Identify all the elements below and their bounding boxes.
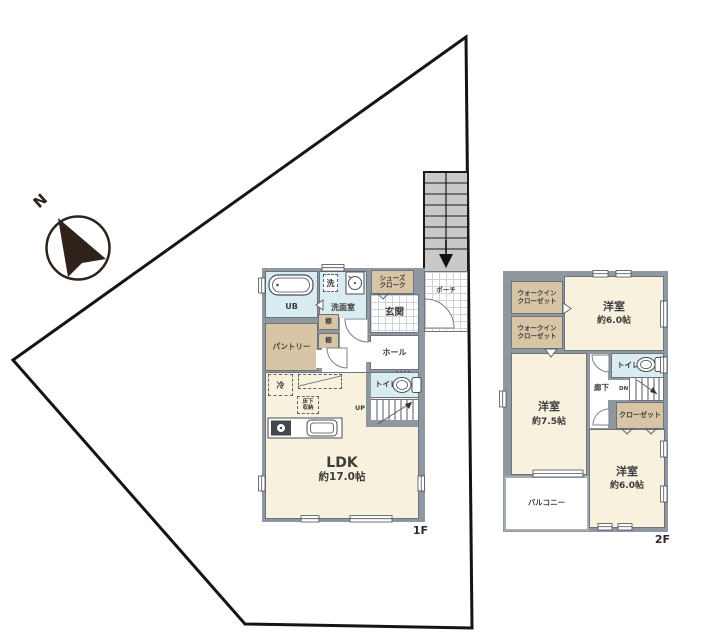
room-wic-2: ウォークイン クローゼット — [512, 317, 562, 348]
wic2-line2: クローゼット — [518, 333, 557, 340]
porch: ポーチ — [425, 272, 467, 331]
counter-space — [298, 374, 342, 389]
hallway-label: 廊下 — [594, 384, 609, 393]
room-closet: クローゼット — [617, 403, 663, 428]
balcony: バルコニー — [506, 478, 587, 529]
north-label: N — [30, 190, 51, 212]
stairs-down-arrow-icon — [439, 254, 453, 268]
ldk-label: LDK — [326, 455, 357, 471]
shoe-cloak-line2: クローク — [380, 282, 406, 289]
bedroom-top-label: 洋室 — [603, 301, 625, 314]
exterior-stairs — [424, 172, 468, 272]
shelf-2: 棚 — [319, 334, 338, 348]
room-bedroom-bottom: 洋室 約6.0帖 — [590, 430, 664, 527]
washer-space: 洗 — [323, 274, 338, 292]
bedroom-top-size: 約6.0帖 — [597, 316, 631, 326]
shelf-1: 棚 — [319, 315, 338, 329]
bedroom-left-label: 洋室 — [538, 401, 560, 414]
floor1-label: 1F — [408, 524, 428, 537]
bedroom-bottom-size: 約6.0帖 — [610, 481, 644, 491]
ldk-size-label: 約17.0帖 — [319, 471, 366, 483]
bedroom-left-size: 約7.5帖 — [532, 417, 566, 427]
porch-label: ポーチ — [425, 287, 467, 294]
underfloor-line2: 収納 — [302, 405, 313, 411]
toilet-1f-label: トイレ — [375, 381, 398, 390]
room-pantry: パントリー — [266, 324, 317, 370]
room-bedroom-left: 洋室 約7.5帖 — [512, 354, 586, 474]
pantry-label: パントリー — [273, 343, 311, 352]
washer-space-label: 洗 — [327, 278, 335, 289]
wic1-line2: クローゼット — [518, 298, 557, 305]
stairs-1f-area — [371, 400, 418, 420]
room-ub: UB — [266, 272, 317, 317]
fridge-label: 冷 — [277, 380, 285, 391]
closet-label: クローゼット — [619, 411, 661, 419]
dn-label: DN — [619, 386, 628, 392]
stairs-2f-area — [630, 378, 663, 400]
up-label: UP — [355, 405, 365, 412]
corridor-1f-ext — [322, 348, 340, 373]
room-wic-1: ウォークイン クローゼット — [512, 282, 562, 313]
pantry-door-gap — [316, 350, 323, 368]
room-genkan: 玄関 — [371, 295, 418, 332]
compass-icon — [47, 217, 110, 280]
hall-label: ホール — [383, 348, 407, 357]
wall-strip-2 — [366, 420, 418, 427]
room-hall: ホール — [371, 336, 418, 369]
floor-plan-canvas: N UB 洗面室 洗 シューズ クローク 玄関 ポーチ ホール パントリー 棚 … — [0, 0, 708, 634]
shelf-2-label: 棚 — [325, 337, 332, 344]
bedroom-bottom-label: 洋室 — [616, 466, 638, 479]
room-washroom-label: 洗面室 — [320, 303, 366, 312]
room-toilet-1f: トイレ — [371, 373, 418, 397]
genkan-label: 玄関 — [385, 308, 404, 319]
room-ub-label: UB — [266, 302, 317, 311]
corridor-1f — [340, 318, 366, 373]
fridge-space: 冷 — [268, 374, 293, 396]
shelf-1-label: 棚 — [325, 318, 332, 325]
room-bedroom-top: 洋室 約6.0帖 — [565, 277, 663, 350]
hall-door-gap — [366, 342, 371, 362]
balcony-label: バルコニー — [528, 499, 565, 508]
room-toilet-2f: トイレ — [612, 354, 663, 377]
toilet-2f-label: トイレ — [617, 361, 640, 370]
underfloor-storage: 床下 収納 — [297, 396, 319, 414]
room-shoe-cloak: シューズ クローク — [372, 271, 413, 293]
floor2-label: 2F — [650, 533, 670, 546]
wall-strip-1 — [366, 373, 371, 420]
